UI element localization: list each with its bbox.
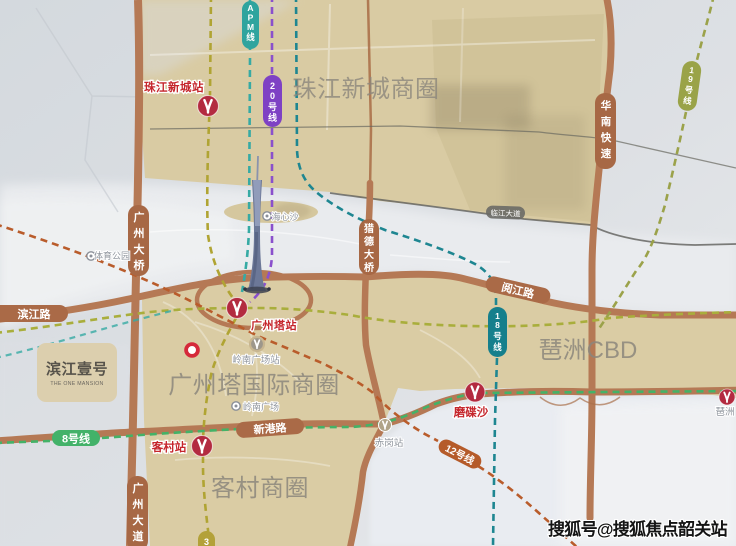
svg-text:珠江新城站: 珠江新城站 (144, 80, 204, 94)
svg-text:赤岗站: 赤岗站 (375, 437, 404, 449)
svg-text:滨江壹号: 滨江壹号 (46, 360, 108, 378)
svg-text:滨江路: 滨江路 (18, 307, 52, 321)
svg-text:客村商圈: 客村商圈 (211, 475, 309, 502)
svg-text:3: 3 (204, 537, 209, 546)
svg-text:8号线: 8号线 (62, 432, 90, 446)
svg-text:搜狐号@搜狐焦点韶关站: 搜狐号@搜狐焦点韶关站 (548, 519, 728, 539)
svg-text:琶洲: 琶洲 (715, 407, 734, 418)
svg-text:岭南广场: 岭南广场 (243, 401, 279, 412)
svg-text:体育公园: 体育公园 (94, 250, 130, 261)
svg-text:广州塔站: 广州塔站 (251, 318, 297, 332)
svg-text:临江大道: 临江大道 (490, 207, 521, 218)
svg-text:磨碟沙: 磨碟沙 (453, 405, 489, 419)
svg-text:岭南广场站: 岭南广场站 (232, 354, 280, 366)
svg-text:珠江新城商圈: 珠江新城商圈 (293, 76, 440, 103)
svg-text:广州塔国际商圈: 广州塔国际商圈 (168, 372, 340, 399)
svg-text:海心沙: 海心沙 (271, 211, 298, 222)
svg-text:琶洲CBD: 琶洲CBD (539, 337, 638, 364)
svg-text:客村站: 客村站 (151, 440, 187, 454)
svg-text:THE ONE MANSION: THE ONE MANSION (50, 381, 103, 387)
